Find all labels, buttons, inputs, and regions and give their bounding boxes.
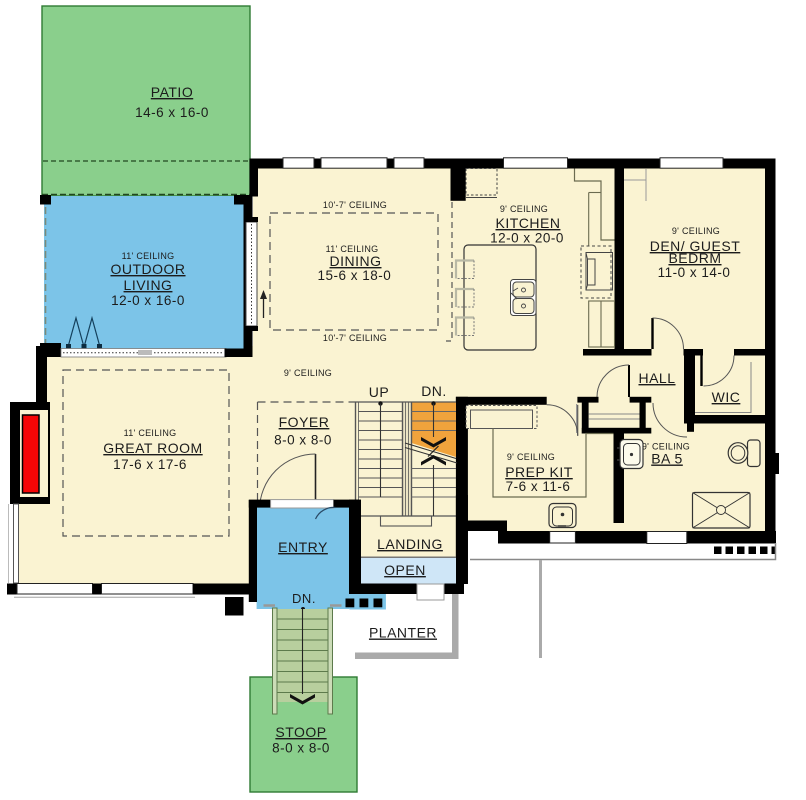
svg-text:KITCHEN: KITCHEN: [496, 215, 561, 231]
svg-text:8-0 x 8-0: 8-0 x 8-0: [274, 433, 332, 448]
svg-text:12-0 x 20-0: 12-0 x 20-0: [490, 231, 564, 246]
svg-text:OUTDOOR: OUTDOOR: [110, 261, 185, 277]
svg-text:DN.: DN.: [292, 591, 316, 606]
svg-text:BA 5: BA 5: [651, 451, 683, 467]
svg-text:PATIO: PATIO: [151, 84, 193, 100]
svg-text:8-0 x 8-0: 8-0 x 8-0: [272, 741, 330, 756]
svg-text:11' CEILING: 11' CEILING: [124, 428, 177, 438]
svg-text:OPEN: OPEN: [384, 562, 426, 578]
svg-text:LIVING: LIVING: [124, 277, 173, 293]
svg-text:DN.: DN.: [421, 383, 447, 399]
svg-text:17-6 x 17-6: 17-6 x 17-6: [113, 457, 187, 472]
svg-text:ENTRY: ENTRY: [278, 539, 328, 555]
svg-text:10'-7' CEILING: 10'-7' CEILING: [323, 200, 387, 210]
svg-text:DINING: DINING: [330, 253, 382, 269]
svg-text:7-6 x 11-6: 7-6 x 11-6: [506, 479, 571, 494]
svg-text:9' CEILING: 9' CEILING: [284, 368, 332, 378]
svg-text:PLANTER: PLANTER: [369, 625, 437, 641]
svg-text:11-0 x 14-0: 11-0 x 14-0: [658, 265, 731, 280]
svg-text:BEDRM: BEDRM: [668, 250, 721, 266]
svg-text:PREP KIT: PREP KIT: [505, 464, 573, 480]
svg-text:9' CEILING: 9' CEILING: [507, 452, 555, 462]
svg-text:LANDING: LANDING: [377, 536, 443, 552]
svg-text:9' CEILING: 9' CEILING: [500, 204, 548, 214]
svg-text:12-0 x 16-0: 12-0 x 16-0: [111, 293, 185, 308]
svg-text:FOYER: FOYER: [279, 414, 330, 430]
svg-text:WIC: WIC: [712, 389, 741, 405]
svg-text:STOOP: STOOP: [275, 724, 326, 740]
svg-text:10'-7' CEILING: 10'-7' CEILING: [323, 333, 387, 343]
svg-text:14-6 x 16-0: 14-6 x 16-0: [135, 105, 209, 120]
svg-text:11' CEILING: 11' CEILING: [122, 251, 175, 261]
svg-text:UP: UP: [369, 384, 389, 400]
svg-text:15-6 x 18-0: 15-6 x 18-0: [318, 268, 392, 283]
svg-text:GREAT ROOM: GREAT ROOM: [103, 440, 202, 456]
svg-text:HALL: HALL: [638, 370, 675, 386]
svg-text:9' CEILING: 9' CEILING: [672, 226, 720, 236]
